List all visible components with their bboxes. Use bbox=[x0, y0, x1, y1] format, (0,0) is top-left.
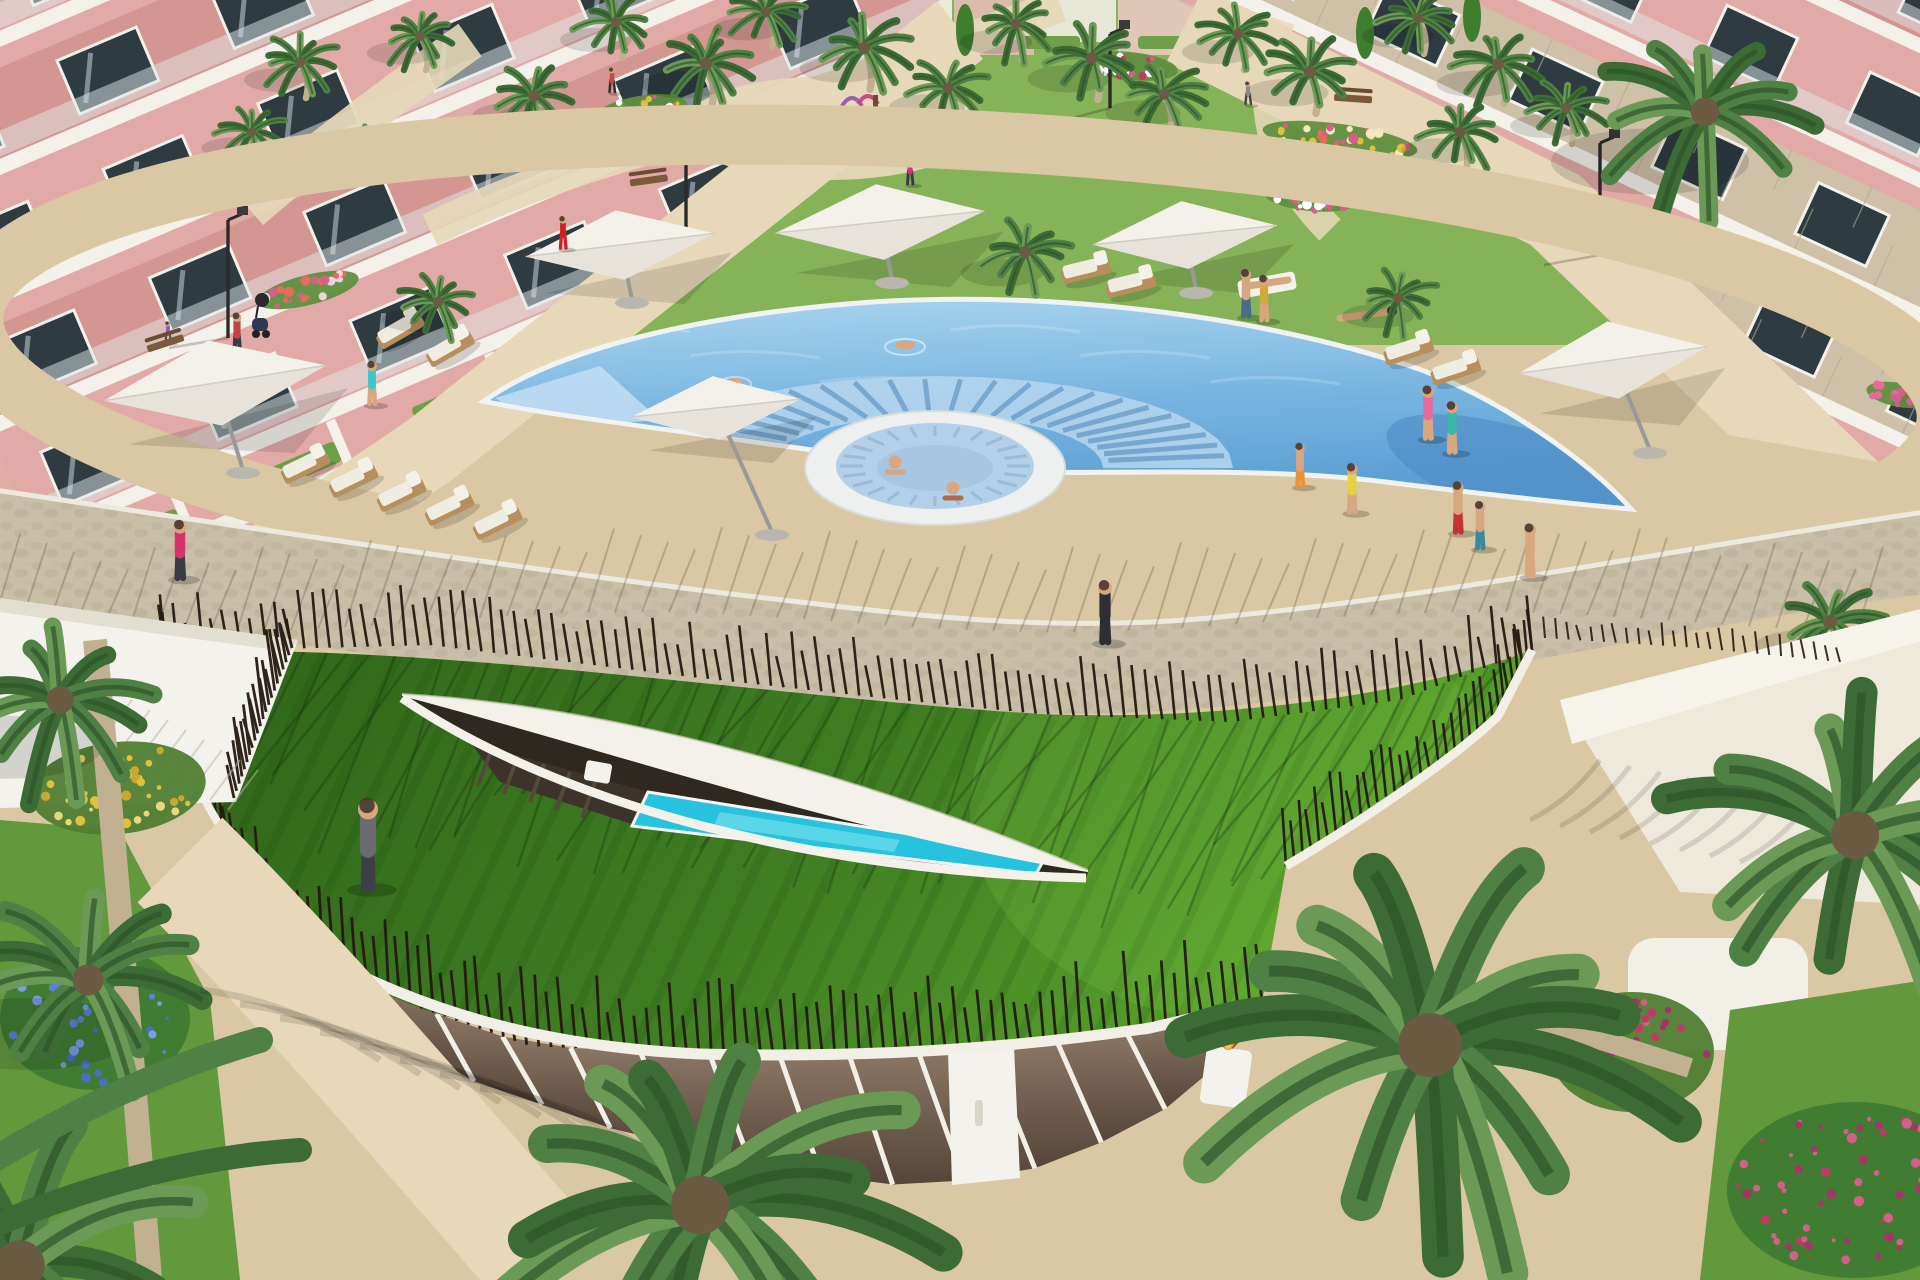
spa-bather bbox=[889, 456, 902, 469]
palm-crown bbox=[295, 57, 305, 67]
palm-crown bbox=[1691, 98, 1720, 127]
umbrella-base bbox=[755, 529, 789, 541]
swimmer bbox=[895, 341, 915, 350]
palm-crown bbox=[611, 17, 621, 27]
palm-crown bbox=[671, 1176, 730, 1235]
palm-crown bbox=[1086, 52, 1098, 64]
palm-crown bbox=[1398, 1013, 1462, 1077]
palm-crown bbox=[700, 58, 712, 70]
palm-crown bbox=[1413, 13, 1423, 23]
clubhouse-door bbox=[948, 1046, 1020, 1185]
spa-bather bbox=[947, 482, 960, 495]
palm-crown bbox=[761, 7, 771, 17]
round-spa-jacuzzi bbox=[805, 411, 1065, 525]
palm-crown bbox=[1831, 811, 1879, 859]
palm-crown bbox=[1011, 19, 1021, 29]
palm-crown bbox=[1492, 58, 1503, 69]
palm-crown bbox=[943, 83, 954, 94]
bbq-grill bbox=[255, 293, 269, 307]
palm-crown bbox=[72, 964, 103, 995]
door-handle bbox=[975, 1100, 983, 1126]
palm-crown bbox=[415, 31, 425, 41]
palm-crown bbox=[858, 42, 870, 54]
resort-aerial-render bbox=[0, 0, 1920, 1280]
palm-crown bbox=[433, 297, 443, 307]
palm-crown bbox=[1393, 293, 1403, 303]
palm-crown bbox=[1455, 127, 1466, 138]
umbrella-base bbox=[226, 467, 260, 479]
palm-crown bbox=[247, 127, 256, 136]
palm-crown bbox=[528, 90, 539, 101]
render-viewport bbox=[0, 0, 1920, 1280]
palm-crown bbox=[1304, 66, 1316, 78]
palm-crown bbox=[1159, 89, 1170, 100]
lamp-head bbox=[1119, 20, 1130, 29]
palm-crown bbox=[1823, 615, 1837, 629]
palm-crown bbox=[1019, 246, 1031, 258]
palm-crown bbox=[1233, 29, 1243, 39]
palm-crown bbox=[1561, 103, 1571, 113]
umbrella-base bbox=[1179, 287, 1213, 299]
umbrella-base bbox=[875, 277, 909, 289]
umbrella-base bbox=[1633, 447, 1667, 459]
lamp-head bbox=[237, 206, 248, 215]
umbrella-base bbox=[615, 297, 649, 309]
stroller bbox=[252, 318, 268, 331]
palm-crown bbox=[46, 686, 73, 713]
